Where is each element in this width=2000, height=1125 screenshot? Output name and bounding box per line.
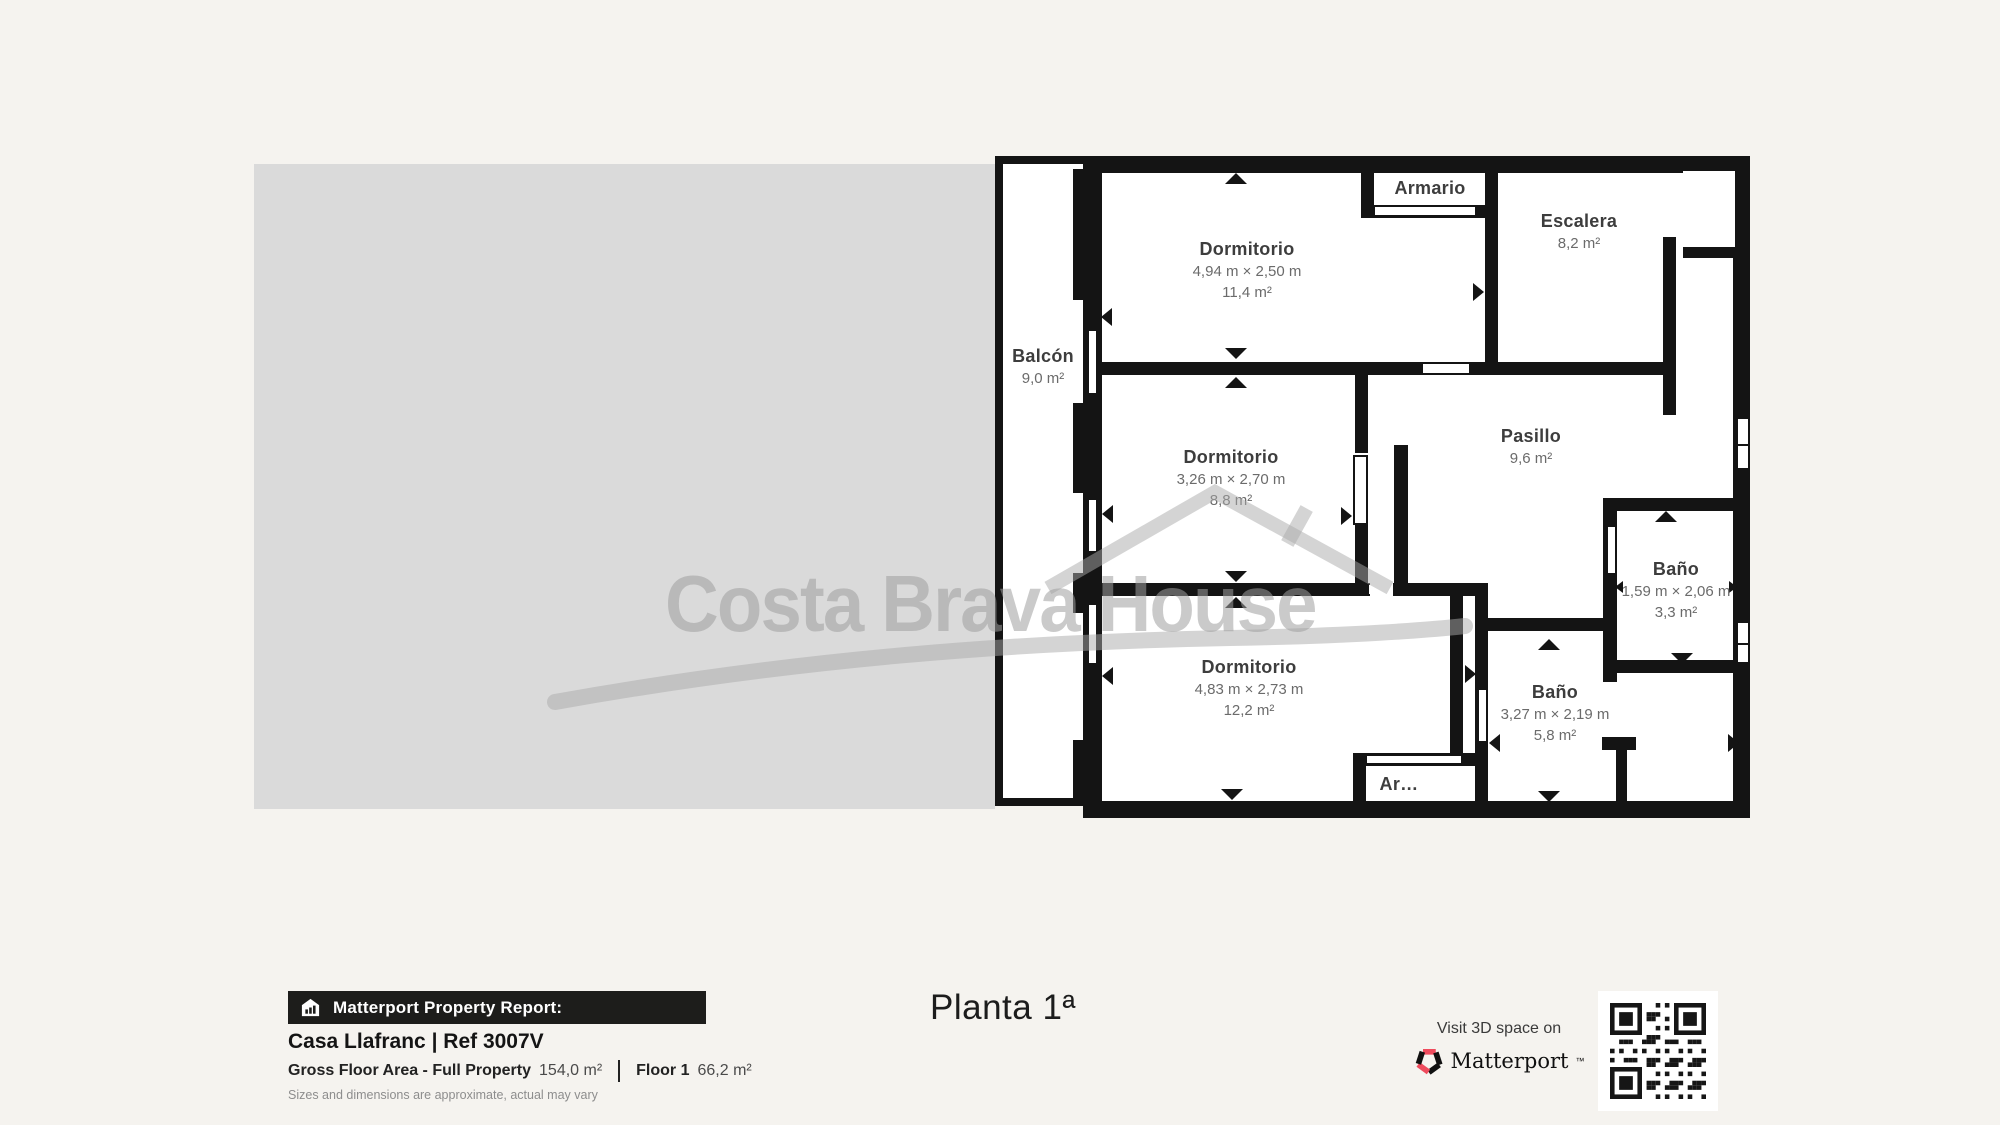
room-area: 5,8 m²: [1501, 725, 1610, 746]
wall: [1683, 247, 1747, 258]
door-opening: [1423, 364, 1469, 373]
floor-plan: Balcón 9,0 m² Dormitorio 4,94 m × 2,50 m…: [995, 153, 1757, 819]
room-label-escalera: Escalera 8,2 m²: [1541, 210, 1617, 254]
door-swing-icon: [1538, 791, 1560, 802]
window: [1087, 329, 1098, 395]
wall: [1393, 583, 1475, 596]
window: [1606, 525, 1617, 575]
room-name: Escalera: [1541, 210, 1617, 233]
room-dimensions: 3,26 m × 2,70 m: [1177, 469, 1286, 490]
door-swing-icon: [1225, 571, 1247, 582]
room-label-armario: Armario: [1394, 177, 1465, 200]
door-swing-icon: [1728, 734, 1739, 752]
qr-code: [1610, 1003, 1706, 1099]
room-label-dormitorio-2: Dormitorio 3,26 m × 2,70 m 8,8 m²: [1177, 446, 1286, 511]
wall: [1073, 169, 1086, 300]
wall: [995, 156, 1087, 164]
room-area: 8,2 m²: [1541, 233, 1617, 254]
room-area: 11,4 m²: [1193, 282, 1302, 303]
wall: [995, 156, 1003, 806]
door-swing-icon: [1101, 308, 1112, 326]
door-swing-icon: [1225, 597, 1247, 608]
door-swing-icon: [1473, 283, 1484, 301]
wall: [1605, 660, 1735, 673]
room-label-bano-2: Baño 3,27 m × 2,19 m 5,8 m²: [1501, 681, 1610, 746]
plan-title: Planta 1ª: [930, 988, 1076, 1028]
report-badge: Matterport Property Report:: [288, 991, 706, 1024]
separator: [618, 1060, 620, 1082]
qr-card: [1598, 991, 1718, 1111]
window: [1087, 498, 1098, 553]
door-jamb: [1353, 455, 1368, 525]
wall: [1083, 156, 1747, 173]
property-title: Casa Llafranc | Ref 3007V: [288, 1030, 544, 1054]
wall: [1605, 498, 1735, 511]
disclaimer: Sizes and dimensions are approximate, ac…: [288, 1088, 598, 1102]
wall: [1073, 403, 1086, 493]
trademark-mark: ™: [1575, 1056, 1584, 1066]
room-area: 8,8 m²: [1177, 490, 1286, 511]
room-name: Pasillo: [1501, 425, 1561, 448]
room-label-balcon: Balcón 9,0 m²: [1012, 345, 1074, 389]
room-name: Balcón: [1012, 345, 1074, 368]
matterport-logo-icon: [1414, 1046, 1444, 1076]
window: [1736, 417, 1750, 470]
room-area: 12,2 m²: [1195, 700, 1304, 721]
room-dimensions: 4,94 m × 2,50 m: [1193, 261, 1302, 282]
door-swing-icon: [1655, 511, 1677, 522]
house-icon: [300, 997, 321, 1018]
room-label-dormitorio-1: Dormitorio 4,94 m × 2,50 m 11,4 m²: [1193, 238, 1302, 303]
room-name: Baño: [1622, 558, 1731, 581]
room-name: Dormitorio: [1177, 446, 1286, 469]
room-area: 9,0 m²: [1012, 368, 1074, 389]
room-name: Dormitorio: [1195, 656, 1304, 679]
door-opening: [1369, 585, 1391, 594]
wall: [1663, 237, 1676, 415]
door-swing-icon: [1671, 653, 1693, 664]
door-swing-icon: [1341, 507, 1352, 525]
room-name: Ar…: [1380, 773, 1419, 796]
gfa-label: Gross Floor Area - Full Property: [288, 1062, 531, 1080]
door-swing-icon: [1489, 734, 1500, 752]
door-swing-icon: [1538, 639, 1560, 650]
room-name: Dormitorio: [1193, 238, 1302, 261]
wall: [1073, 740, 1086, 800]
door-swing-icon: [1225, 377, 1247, 388]
wall: [1450, 596, 1463, 754]
room-dimensions: 3,27 m × 2,19 m: [1501, 704, 1610, 725]
wall: [1394, 445, 1408, 596]
room-area: 3,3 m²: [1622, 602, 1731, 623]
window: [1087, 603, 1098, 665]
gray-panel: [254, 164, 995, 809]
door-swing-icon: [1225, 173, 1247, 184]
wall: [1100, 583, 1370, 596]
door-swing-icon: [1465, 665, 1476, 683]
room-name: Baño: [1501, 681, 1610, 704]
area-summary: Gross Floor Area - Full Property 154,0 m…: [288, 1060, 752, 1082]
floor-value: 66,2 m²: [698, 1062, 752, 1080]
door-swing-icon: [1221, 789, 1243, 800]
gfa-value: 154,0 m²: [539, 1062, 602, 1080]
room-dimensions: 4,83 m × 2,73 m: [1195, 679, 1304, 700]
window: [1736, 621, 1750, 664]
matterport-brand-text: Matterport: [1451, 1049, 1569, 1073]
wall: [1073, 573, 1086, 613]
room-name: Armario: [1394, 177, 1465, 200]
visit-3d-block: Visit 3D space on Matterport ™: [1408, 1020, 1590, 1076]
door-opening: [1367, 756, 1461, 763]
wall: [1083, 801, 1747, 818]
room-label-pasillo: Pasillo 9,6 m²: [1501, 425, 1561, 469]
page: { "watermark": { "brand": "Costa Brava H…: [0, 0, 2000, 1125]
room-area: 9,6 m²: [1501, 448, 1561, 469]
room-label-bano-1: Baño 1,59 m × 2,06 m 3,3 m²: [1622, 558, 1731, 623]
visit-text: Visit 3D space on: [1437, 1020, 1561, 1038]
door-swing-icon: [1102, 667, 1113, 685]
wall: [1498, 362, 1664, 375]
door-swing-icon: [1225, 348, 1247, 359]
room-label-armario-2: Ar…: [1380, 773, 1419, 796]
room-dimensions: 1,59 m × 2,06 m: [1622, 581, 1731, 602]
room-label-dormitorio-3: Dormitorio 4,83 m × 2,73 m 12,2 m²: [1195, 656, 1304, 721]
report-badge-label: Matterport Property Report:: [333, 998, 562, 1018]
wall: [1485, 170, 1498, 375]
wall: [1475, 618, 1603, 631]
stair-void: [1683, 171, 1735, 247]
door-swing-icon: [1102, 505, 1113, 523]
wall: [1355, 375, 1368, 453]
window: [1477, 688, 1488, 743]
wall: [1616, 750, 1627, 812]
floor-label: Floor 1: [636, 1062, 689, 1080]
door-opening: [1375, 207, 1475, 215]
wall: [1353, 753, 1366, 811]
